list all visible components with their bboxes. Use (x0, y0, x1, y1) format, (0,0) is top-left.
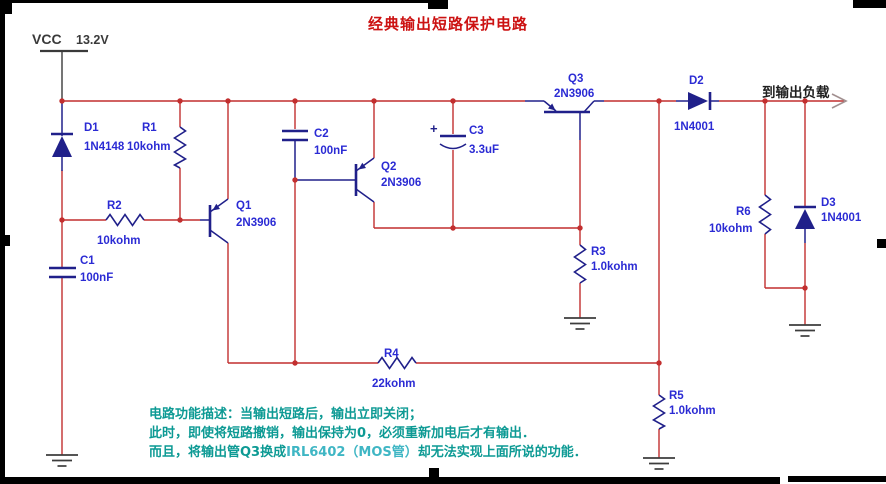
label-r3-value: 1.0kohm (591, 261, 638, 273)
resistor-r1-symbol (175, 127, 186, 168)
frame-bottom-bar-right (788, 476, 886, 482)
circuit-description: 电路功能描述：当输出短路后，输出立即关闭； 此时，即使将短路撤销，输出保持为0，… (149, 405, 587, 462)
label-q3-ref: Q3 (568, 73, 583, 85)
description-line-3-highlight: IRL6402（MOS管） (286, 445, 418, 460)
description-line-3-suffix: 却无法实现上面所说的功能． (418, 445, 587, 460)
transistor-collector-lead (210, 230, 228, 243)
label-d2-ref: D2 (689, 75, 704, 87)
vcc-voltage: 13.2V (76, 33, 109, 47)
vcc-terminal: VCC 13.2V (32, 31, 109, 101)
frame-bottom-bar (0, 477, 780, 484)
junction-dot (762, 98, 767, 103)
diode-triangle (688, 92, 708, 110)
junction-dots (59, 98, 807, 365)
label-r6-value: 10kohm (709, 223, 752, 235)
frame-top-tick (428, 0, 448, 9)
junction-dot (450, 225, 455, 230)
label-q2-value: 2N3906 (381, 177, 421, 189)
label-q1-ref: Q1 (236, 200, 252, 212)
frame-bottom-tick (429, 468, 439, 478)
capacitor-curved-plate (440, 144, 466, 149)
schematic-page: 经典输出短路保护电路 (0, 0, 886, 484)
label-q3-value: 2N3906 (554, 88, 594, 100)
junction-dot (177, 98, 182, 103)
capacitor-c2-symbol (282, 131, 308, 180)
label-c3-ref: C3 (469, 125, 484, 137)
label-q1-value: 2N3906 (236, 217, 276, 229)
resistor-r3-symbol (575, 245, 586, 283)
label-c1-value: 100nF (80, 272, 113, 284)
junction-dot (177, 217, 182, 222)
frame-right-tick (877, 239, 886, 248)
junction-dot (802, 285, 807, 290)
junction-dot (802, 98, 807, 103)
description-line-3-prefix: 而且，将输出管Q3换成 (149, 445, 286, 460)
junction-dot (292, 98, 297, 103)
label-r5-value: 1.0kohm (669, 405, 716, 417)
transistor-collector-lead (584, 101, 594, 112)
diode-d3-symbol (794, 207, 816, 243)
junction-dot (450, 98, 455, 103)
frame-top-line (0, 0, 448, 3)
resistor-r6-symbol (760, 195, 771, 234)
description-line-3: 而且，将输出管Q3换成IRL6402（MOS管）却无法实现上面所说的功能． (149, 443, 587, 462)
label-c1-ref: C1 (80, 255, 95, 267)
frame-top-right-line (853, 0, 886, 8)
label-d3-ref: D3 (821, 197, 836, 209)
label-r4-ref: R4 (384, 348, 399, 360)
transistor-q1-symbol (200, 199, 228, 243)
label-r3-ref: R3 (591, 246, 606, 258)
transistor-emitter-lead (210, 199, 228, 212)
capacitor-c1-symbol (49, 268, 76, 277)
junction-dot (656, 360, 661, 365)
label-d2-value: 1N4001 (674, 121, 715, 133)
junction-dot (577, 225, 582, 230)
ground-symbol (46, 455, 78, 466)
junction-dot (292, 360, 297, 365)
label-d3-value: 1N4001 (821, 212, 862, 224)
junction-dot (371, 98, 376, 103)
transistor-q2-symbol (295, 158, 374, 202)
description-line-2: 此时，即使将短路撤销，输出保持为0，必须重新加电后才有输出． (149, 424, 587, 443)
transistor-emitter-lead (356, 158, 374, 171)
label-c2-ref: C2 (314, 128, 329, 140)
label-r5-ref: R5 (669, 390, 684, 402)
transistor-q3-symbol (525, 101, 604, 140)
frame-left-tick (0, 235, 10, 246)
ground-symbol (564, 318, 596, 329)
label-r2-ref: R2 (107, 200, 122, 212)
junction-dot (656, 98, 661, 103)
junction-dot (59, 98, 64, 103)
ground-symbol (643, 458, 675, 469)
label-c2-value: 100nF (314, 145, 347, 157)
diode-triangle (795, 209, 815, 229)
resistor-r5-symbol (654, 395, 665, 429)
junction-dot (225, 98, 230, 103)
diode-triangle (52, 136, 72, 157)
diode-d2-symbol (676, 92, 719, 110)
label-q2-ref: Q2 (381, 161, 396, 173)
junction-dot (292, 177, 297, 182)
label-d1-ref: D1 (84, 122, 99, 134)
label-c3-value: 3.3uF (469, 144, 499, 156)
diode-d1-symbol (51, 101, 73, 171)
junction-dot (59, 217, 64, 222)
description-line-1: 电路功能描述：当输出短路后，输出立即关闭； (149, 405, 587, 424)
resistor-r2-symbol (106, 215, 144, 226)
label-r4-value: 22kohm (372, 378, 415, 390)
label-r1-value: 10kohm (127, 141, 170, 153)
ground-symbol (789, 325, 821, 336)
transistor-collector-lead (356, 189, 374, 202)
capacitor-c3-symbol (440, 136, 466, 149)
label-r1-ref: R1 (142, 122, 157, 134)
label-r2-value: 10kohm (97, 235, 140, 247)
output-load-label: 到输出负载 (762, 84, 830, 101)
label-d1-value: 1N4148 (84, 141, 125, 153)
label-c3-polarity: + (430, 121, 438, 136)
vcc-label: VCC (32, 31, 62, 47)
label-r6-ref: R6 (736, 206, 751, 218)
